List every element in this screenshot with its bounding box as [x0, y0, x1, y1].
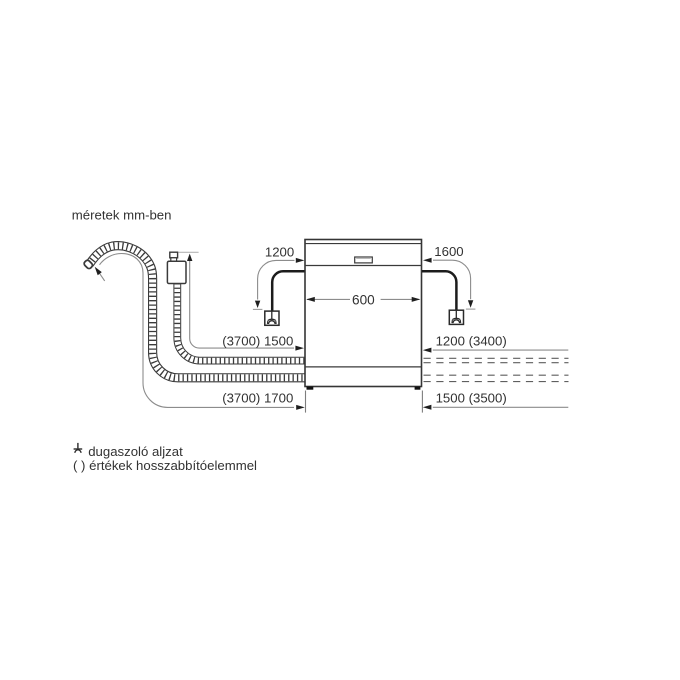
svg-text:1600: 1600	[434, 244, 463, 259]
svg-text:(3700) 1700: (3700) 1700	[222, 391, 293, 406]
svg-text:1200 (3400): 1200 (3400)	[436, 333, 507, 348]
svg-text:1500 (3500): 1500 (3500)	[436, 390, 507, 405]
svg-text:(3700) 1500: (3700) 1500	[222, 334, 293, 349]
svg-text:600: 600	[352, 292, 375, 307]
svg-text:1200: 1200	[265, 244, 294, 259]
svg-text:( ) értékek hosszabbítóelemmel: ( ) értékek hosszabbítóelemmel	[73, 458, 257, 473]
svg-text:méretek mm-ben: méretek mm-ben	[72, 208, 172, 223]
